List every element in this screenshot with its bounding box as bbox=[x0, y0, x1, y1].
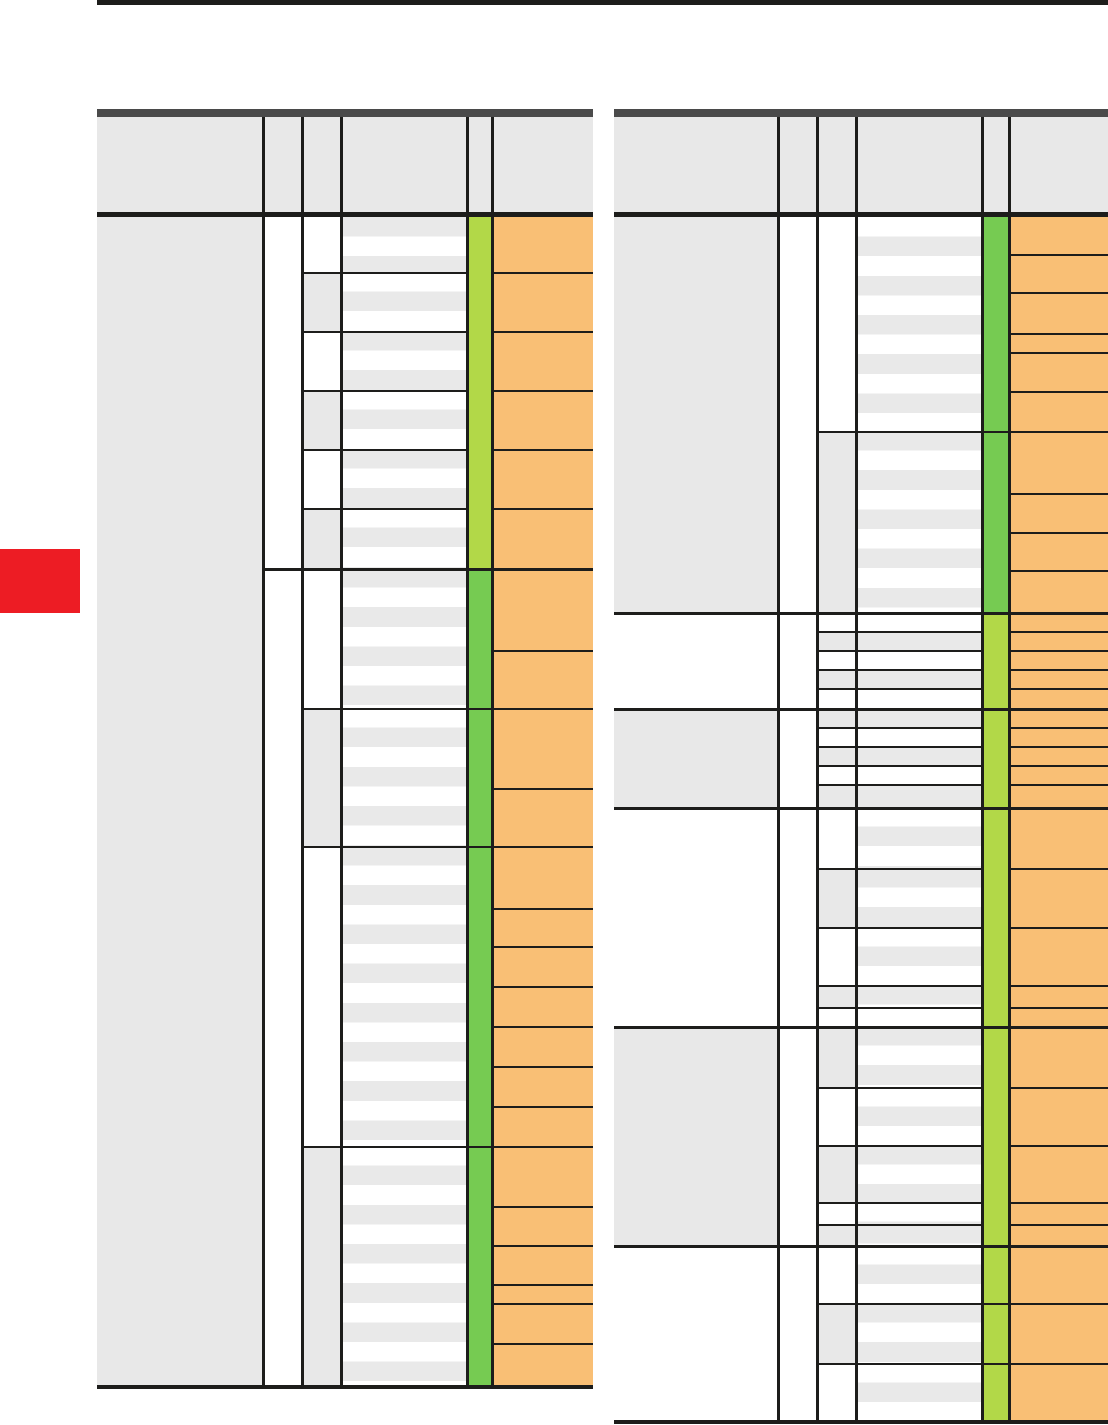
table-right-col1-cell bbox=[614, 217, 777, 612]
table-left-orange-divider bbox=[494, 1106, 593, 1108]
table-right-col3-block bbox=[819, 784, 855, 807]
table-right-col4-row bbox=[858, 631, 981, 650]
table-right-group-divider bbox=[614, 708, 1108, 711]
table-right-orange-divider bbox=[1011, 1363, 1108, 1365]
table-right-col3-block bbox=[819, 1145, 855, 1202]
table-right-col3-block bbox=[819, 1026, 855, 1087]
table-right-col4-stripes bbox=[858, 1145, 981, 1202]
table-right-block-divider bbox=[816, 784, 984, 786]
table-right-block-divider bbox=[816, 868, 984, 870]
table-left-col4-stripes bbox=[343, 1146, 466, 1385]
table-right-col3-block bbox=[819, 985, 855, 1007]
table-right-col4-row bbox=[858, 746, 981, 765]
table-right-col3-block bbox=[819, 431, 855, 612]
table-left-block-divider bbox=[301, 390, 469, 392]
table-left-header-bar bbox=[97, 109, 593, 117]
table-right-column-rule bbox=[816, 117, 819, 1420]
table-left-col4-stripes bbox=[343, 272, 466, 331]
table-left-orange-divider bbox=[494, 650, 593, 652]
table-right-col4-stripes bbox=[858, 1303, 981, 1363]
table-right-col4-stripes bbox=[858, 1363, 981, 1420]
table-left-bottom-rule bbox=[97, 1385, 593, 1389]
table-left-header-band bbox=[97, 117, 593, 212]
table-left-green-strip bbox=[469, 568, 491, 1385]
table-right-column-rule bbox=[777, 117, 780, 1420]
table-left-orange-divider bbox=[494, 788, 593, 790]
table-left-column-rule bbox=[262, 117, 265, 1385]
table-left-orange-divider bbox=[494, 908, 593, 910]
table-right-col3-block bbox=[819, 1224, 855, 1245]
table-right-block-divider bbox=[816, 1202, 984, 1204]
table-right-column-rule bbox=[1008, 117, 1011, 1420]
table-left-column-rule bbox=[340, 117, 343, 1385]
table-left-col4-stripes bbox=[343, 217, 466, 272]
table-right-orange-divider bbox=[1011, 352, 1108, 354]
table-left-col3-block bbox=[304, 1146, 340, 1385]
table-right-col1-cell bbox=[614, 1026, 777, 1245]
table-right-orange-divider bbox=[1011, 333, 1108, 335]
table-right-bottom-rule bbox=[614, 1420, 1108, 1424]
table-right-orange-divider bbox=[1011, 1202, 1108, 1204]
table-left-orange-divider bbox=[494, 846, 593, 848]
table-right-col4-stripes bbox=[858, 1007, 981, 1026]
table-left-col4-stripes bbox=[343, 390, 466, 449]
table-left-orange-divider bbox=[494, 1066, 593, 1068]
table-right-column-rule bbox=[981, 117, 984, 1420]
table-right-column-rule bbox=[855, 117, 858, 1420]
table-right-group-divider bbox=[614, 612, 1108, 615]
table-left-header-rule bbox=[97, 212, 593, 217]
page-tab-marker bbox=[0, 549, 80, 613]
table-left-orange-divider bbox=[494, 1303, 593, 1305]
table-right-header-band bbox=[614, 117, 1108, 212]
table-right-orange-divider bbox=[1011, 784, 1108, 786]
table-right-col4-stripes bbox=[858, 1224, 981, 1245]
table-left-orange-divider bbox=[494, 708, 593, 710]
table-left-orange-divider bbox=[494, 1026, 593, 1028]
table-right-col4-stripes bbox=[858, 927, 981, 985]
table-left-orange-divider bbox=[494, 1146, 593, 1148]
table-left-col4-stripes bbox=[343, 449, 466, 508]
table-left-column-rule bbox=[301, 117, 304, 1385]
table-right-col3-block bbox=[819, 669, 855, 688]
table-left-col4-stripes bbox=[343, 708, 466, 846]
table-left-col3-block bbox=[304, 708, 340, 846]
table-right-block-divider bbox=[816, 1224, 984, 1226]
table-right-block-divider bbox=[816, 669, 984, 671]
table-left-orange-divider bbox=[494, 1206, 593, 1208]
table-right-block-divider bbox=[816, 1087, 984, 1089]
table-right-orange-divider bbox=[1011, 746, 1108, 748]
table-right-orange-divider bbox=[1011, 650, 1108, 652]
table-left-col4-stripes bbox=[343, 508, 466, 568]
table-right-orange-divider bbox=[1011, 1224, 1108, 1226]
table-right-col3-block bbox=[819, 868, 855, 927]
table-right-orange-divider bbox=[1011, 765, 1108, 767]
table-left-orange-divider bbox=[494, 390, 593, 392]
table-left-orange-divider bbox=[494, 1343, 593, 1345]
table-right-col4-stripes bbox=[858, 807, 981, 868]
table-left-block-divider bbox=[301, 331, 469, 333]
table-right-block-divider bbox=[816, 1145, 984, 1147]
table-left-col4-stripes bbox=[343, 331, 466, 390]
table-right-block-divider bbox=[816, 650, 984, 652]
table-right-col3-block bbox=[819, 746, 855, 765]
table-right-orange-divider bbox=[1011, 431, 1108, 433]
table-right-orange-divider bbox=[1011, 532, 1108, 534]
table-right-orange-divider bbox=[1011, 1303, 1108, 1305]
table-right-col4-stripes bbox=[858, 1026, 981, 1087]
table-left-column-rule bbox=[466, 117, 469, 1385]
table-right-group-divider bbox=[614, 807, 1108, 810]
table-right-orange-divider bbox=[1011, 669, 1108, 671]
table-left-green-strip bbox=[469, 217, 491, 568]
table-right-orange-divider bbox=[1011, 391, 1108, 393]
table-left-orange-divider bbox=[494, 1284, 593, 1286]
table-left-block-divider bbox=[301, 449, 469, 451]
table-right-orange-divider bbox=[1011, 1087, 1108, 1089]
table-right-header-rule bbox=[614, 212, 1108, 217]
table-right-block-divider bbox=[816, 985, 984, 987]
table-right-col3-block bbox=[819, 631, 855, 650]
table-right-col3-block bbox=[819, 1303, 855, 1363]
table-right-col4-stripes bbox=[858, 217, 981, 431]
table-right-block-divider bbox=[816, 688, 984, 690]
table-right-green-strip bbox=[984, 217, 1008, 612]
table-left-col3-block bbox=[304, 272, 340, 331]
table-right-block-divider bbox=[816, 927, 984, 929]
table-right-orange-divider bbox=[1011, 292, 1108, 294]
table-right-col4-row bbox=[858, 784, 981, 807]
table-right-block-divider bbox=[816, 1007, 984, 1009]
table-left-orange-divider bbox=[494, 331, 593, 333]
table-left-orange-divider bbox=[494, 508, 593, 510]
table-left-block-divider bbox=[301, 508, 469, 510]
table-right-orange-divider bbox=[1011, 688, 1108, 690]
table-right-col4-stripes bbox=[858, 868, 981, 927]
table-right-orange-column bbox=[1011, 217, 1108, 1420]
page-top-rule bbox=[97, 0, 1108, 5]
table-right-block-divider bbox=[816, 765, 984, 767]
table-right-col4-stripes bbox=[858, 1245, 981, 1303]
table-left-block-divider bbox=[301, 272, 469, 274]
table-right-block-divider bbox=[816, 631, 984, 633]
table-left-col1-cell bbox=[97, 217, 262, 1385]
table-right-orange-divider bbox=[1011, 868, 1108, 870]
table-right-col4-row bbox=[858, 669, 981, 688]
table-right-orange-divider bbox=[1011, 927, 1108, 929]
table-right-header-bar bbox=[614, 109, 1108, 117]
table-right-orange-divider bbox=[1011, 493, 1108, 495]
catalog-page bbox=[0, 0, 1108, 1425]
table-right-block-divider bbox=[816, 727, 984, 729]
table-left-group-divider bbox=[262, 568, 593, 571]
table-right-col4-stripes bbox=[858, 1087, 981, 1145]
table-right-col4-stripes bbox=[858, 985, 981, 1007]
table-right-orange-divider bbox=[1011, 727, 1108, 729]
table-left-orange-divider bbox=[494, 946, 593, 948]
table-left-column-rule bbox=[491, 117, 494, 1385]
table-left-orange-divider bbox=[494, 272, 593, 274]
table-right-orange-divider bbox=[1011, 1145, 1108, 1147]
table-left-col4-stripes bbox=[343, 568, 466, 708]
table-left-col3-block bbox=[304, 390, 340, 449]
table-right-col4-stripes bbox=[858, 1202, 981, 1224]
table-right-block-divider bbox=[816, 746, 984, 748]
table-left-orange-column bbox=[494, 217, 593, 1385]
table-left-orange-divider bbox=[494, 1245, 593, 1247]
table-left-col3-block bbox=[304, 508, 340, 568]
table-right-orange-divider bbox=[1011, 985, 1108, 987]
table-right-orange-divider bbox=[1011, 1007, 1108, 1009]
table-right-orange-divider bbox=[1011, 570, 1108, 572]
table-right-group-divider bbox=[614, 1245, 1108, 1248]
table-right-orange-divider bbox=[1011, 631, 1108, 633]
table-right-group-divider bbox=[614, 1026, 1108, 1029]
table-right-orange-divider bbox=[1011, 254, 1108, 256]
table-left-orange-divider bbox=[494, 449, 593, 451]
table-left-orange-divider bbox=[494, 986, 593, 988]
table-right-green-strip bbox=[984, 612, 1008, 1420]
table-left-col4-stripes bbox=[343, 846, 466, 1146]
table-right-col4-stripes bbox=[858, 431, 981, 612]
table-right-col1-cell bbox=[614, 708, 777, 807]
